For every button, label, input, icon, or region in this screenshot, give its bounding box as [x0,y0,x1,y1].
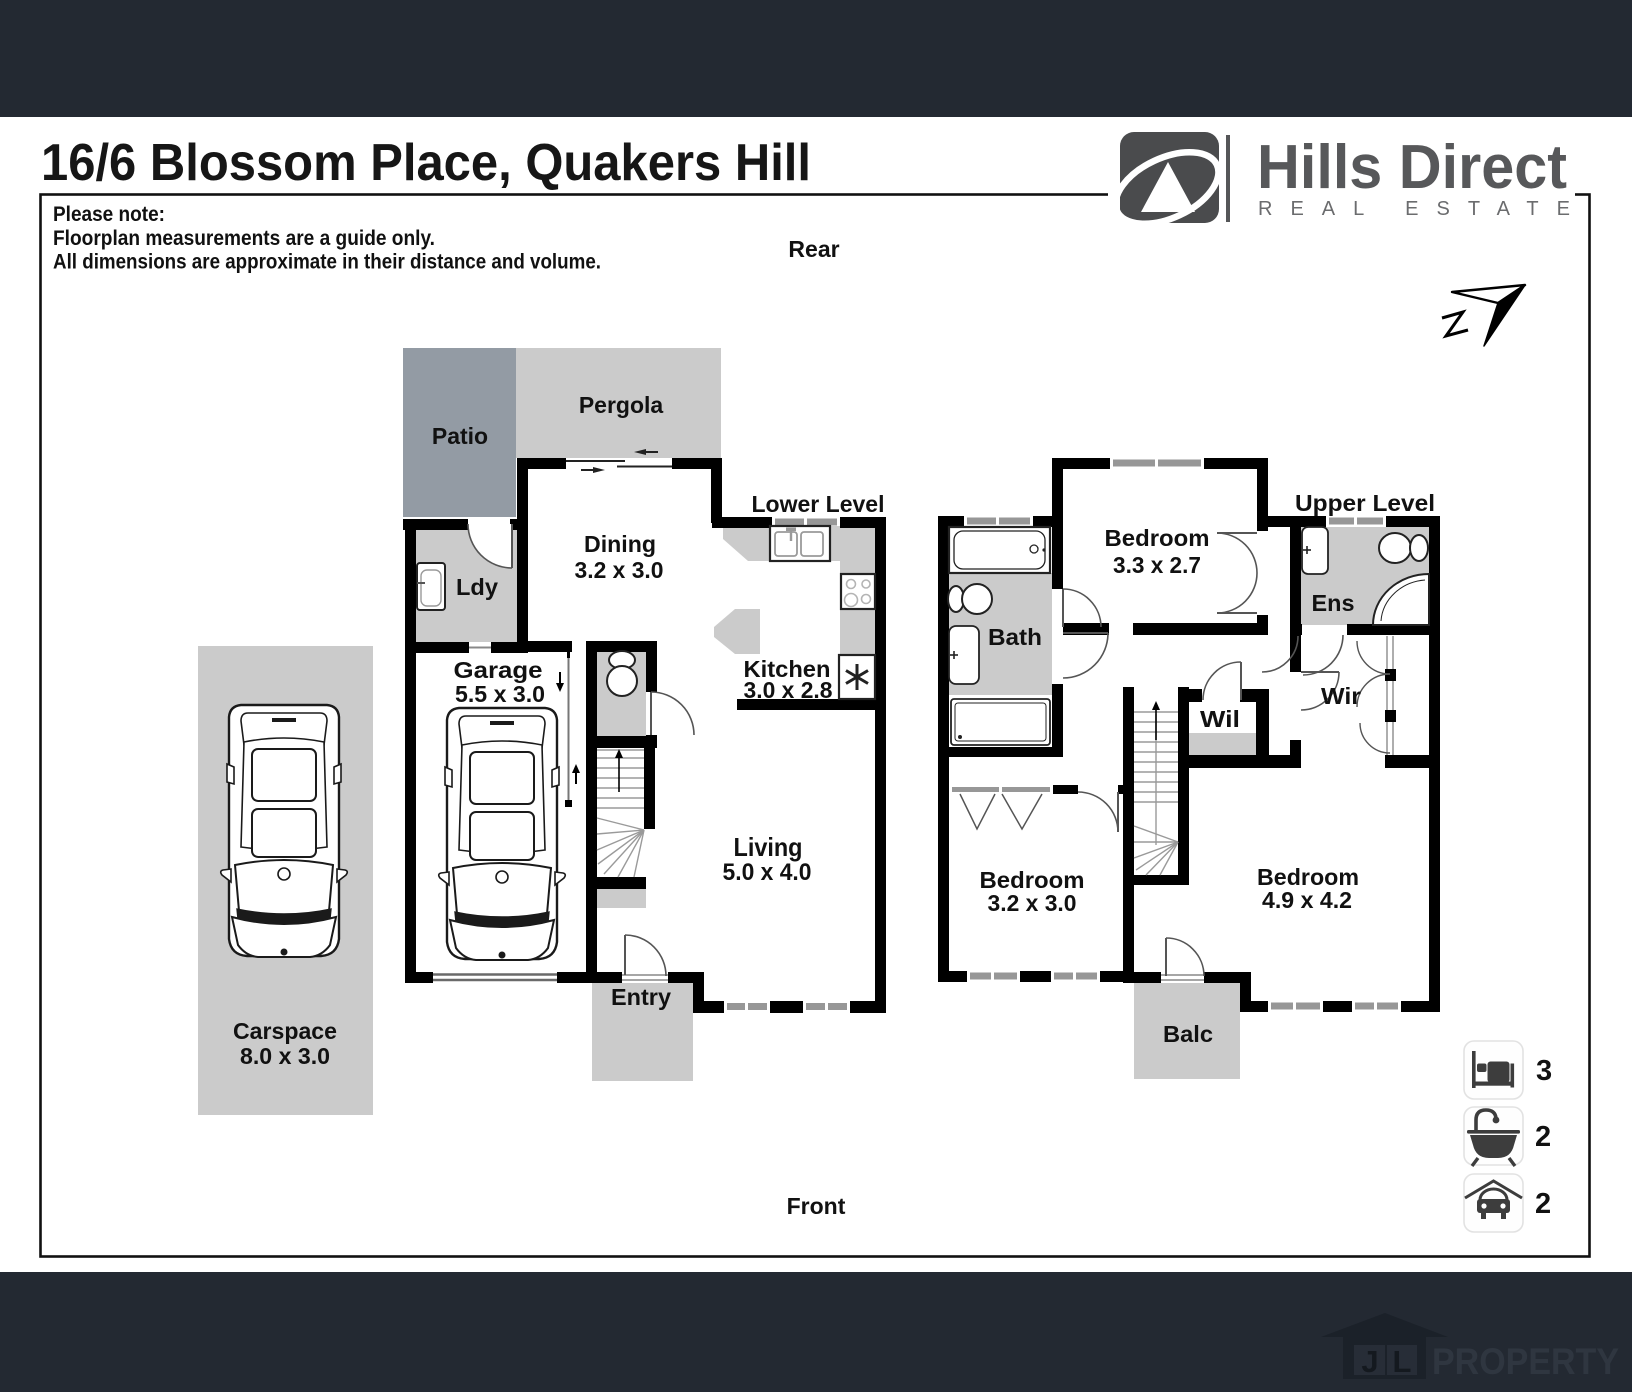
svg-text:Wir: Wir [1321,683,1361,709]
svg-text:Living: Living [734,832,803,862]
svg-text:Ldy: Ldy [456,574,498,600]
svg-text:5.5 x 3.0: 5.5 x 3.0 [455,681,545,707]
svg-text:8.0 x 3.0: 8.0 x 3.0 [240,1043,330,1069]
svg-text:Balc: Balc [1163,1021,1213,1047]
svg-text:Lower Level: Lower Level [752,491,885,517]
svg-text:PROPERTY: PROPERTY [1432,1341,1619,1382]
svg-text:Patio: Patio [432,423,488,449]
svg-text:3: 3 [1536,1055,1552,1087]
svg-text:Bedroom: Bedroom [1105,525,1210,551]
svg-text:Ens: Ens [1312,590,1355,616]
svg-text:Pergola: Pergola [579,392,664,418]
svg-text:4.9 x 4.2: 4.9 x 4.2 [1262,887,1352,913]
svg-text:J: J [1361,1344,1378,1379]
svg-text:5.0 x 4.0: 5.0 x 4.0 [723,859,812,886]
svg-text:2: 2 [1535,1188,1551,1220]
svg-text:Entry: Entry [611,984,671,1010]
svg-text:2: 2 [1535,1121,1551,1153]
svg-text:L: L [1393,1344,1412,1379]
svg-text:All dimensions are approximate: All dimensions are approximate in their … [53,251,601,274]
svg-text:Hills Direct: Hills Direct [1257,133,1567,202]
svg-text:Garage: Garage [454,657,543,683]
svg-text:3.0 x 2.8: 3.0 x 2.8 [744,677,833,703]
svg-text:3.2 x 3.0: 3.2 x 3.0 [988,890,1077,916]
svg-text:3.2 x 3.0: 3.2 x 3.0 [575,557,664,583]
svg-text:Floorplan measurements are a g: Floorplan measurements are a guide only. [53,227,435,250]
svg-text:16/6 Blossom Place, Quakers Hi: 16/6 Blossom Place, Quakers Hill [41,134,811,192]
svg-text:Rear: Rear [788,236,839,262]
svg-text:Wil: Wil [1200,706,1240,732]
svg-text:Please note:: Please note: [53,203,165,226]
svg-text:Carspace: Carspace [233,1018,337,1044]
svg-text:3.3 x 2.7: 3.3 x 2.7 [1113,552,1201,578]
svg-text:Front: Front [787,1193,846,1219]
svg-text:Dining: Dining [584,531,656,557]
svg-text:Bath: Bath [988,624,1042,650]
svg-text:Upper Level: Upper Level [1295,490,1435,516]
